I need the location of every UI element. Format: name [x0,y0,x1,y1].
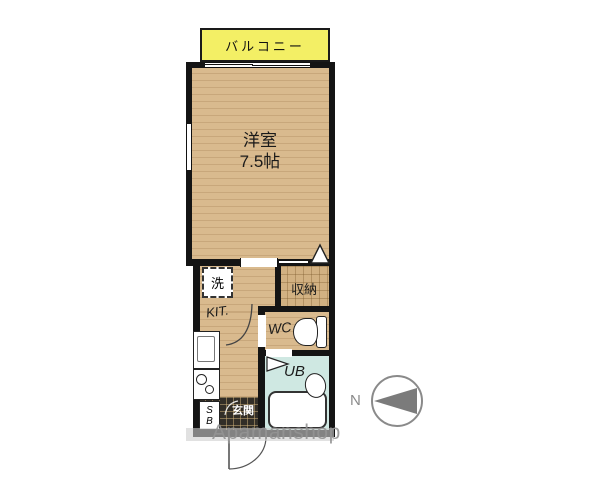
floorplan-canvas: バルコニー 洗 S B [0,0,600,480]
stove-burner-small [205,385,214,394]
watermark-text: Apamanshop [212,421,341,445]
kitchen-label: KIT. [205,302,230,320]
compass-circle [372,376,422,426]
toilet-bowl [293,318,318,346]
wc-door-gap [258,315,266,347]
balcony-area: バルコニー [200,28,330,62]
washing-machine-box: 洗 [202,267,233,298]
closet-label: 収納 [279,279,329,298]
entrance-label: 玄関 [232,402,254,418]
wall-right [329,62,335,437]
kitchen-sink-basin [197,336,215,362]
main-room-name: 洋室 [191,130,329,151]
kitchen-doorway-gap [240,258,278,267]
shoebox-label-s: S [206,405,213,416]
wall-closet-bottom [258,306,335,312]
wc-label: WC [267,319,292,337]
washer-label: 洗 [211,273,224,292]
closet-door-line [279,261,308,263]
balcony-window-sash-right [252,65,310,66]
stove-burner-large [196,374,207,385]
balcony-label: バルコニー [225,36,305,55]
compass-label: N [350,392,361,409]
main-room-label: 洋室 7.5帖 [191,130,329,172]
bath-door-gap [266,349,292,357]
main-room-size: 7.5帖 [191,151,329,172]
balcony-window-sash-left [205,64,253,65]
compass-needle-icon [374,388,417,414]
unit-bath-label: UB [284,363,305,380]
